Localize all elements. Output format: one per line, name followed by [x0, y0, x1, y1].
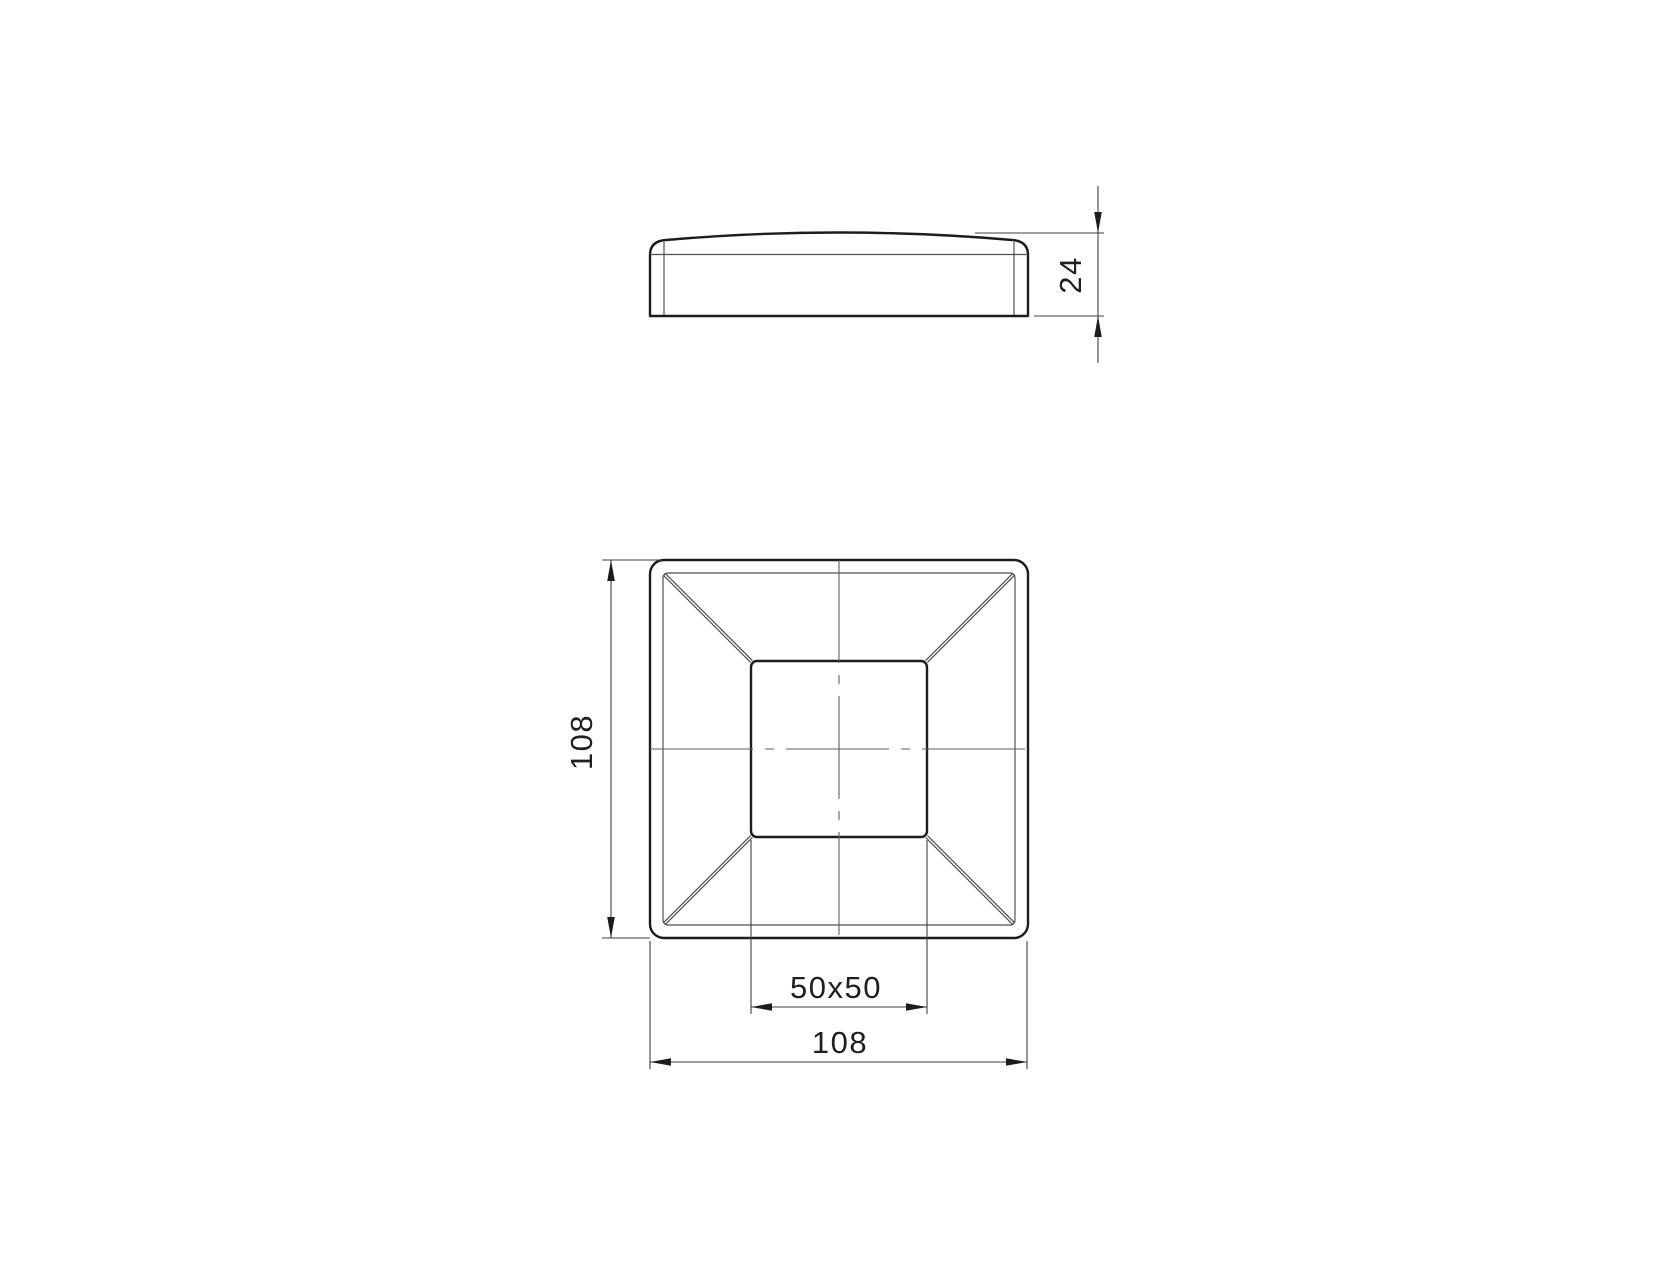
- side-view-outline: [650, 233, 1028, 317]
- dimension-label-inner-square: 50x50: [790, 970, 882, 1005]
- fillet-bottom-left-a: [663, 836, 751, 924]
- arrowhead-left: [650, 1058, 671, 1066]
- dimension-label-plan-height: 108: [564, 714, 599, 770]
- side-elevation-view: [650, 233, 1028, 317]
- arrowhead-right: [1006, 1058, 1027, 1066]
- arrowhead-down: [607, 917, 615, 938]
- fillet-bottom-left-b: [665, 837, 753, 925]
- arrowhead-right: [906, 1003, 927, 1011]
- fillet-top-right-a: [927, 575, 1015, 663]
- fillet-top-left-b: [663, 575, 751, 663]
- fillet-bottom-right-a: [926, 837, 1014, 925]
- arrowhead-left: [751, 1003, 772, 1011]
- fillet-top-left-a: [665, 573, 753, 661]
- fillet-top-right-b: [926, 573, 1014, 661]
- dimension-plan-width: 108: [650, 941, 1027, 1069]
- post-cap-drawing: 24: [0, 0, 1680, 1261]
- top-plan-view: [650, 560, 1028, 938]
- dimension-label-plan-width: 108: [812, 1025, 868, 1060]
- arrowhead-up: [1094, 316, 1102, 337]
- technical-drawing-sheet: 24: [0, 0, 1680, 1261]
- arrowhead-up: [607, 560, 615, 581]
- arrowhead-down: [1094, 212, 1102, 233]
- fillet-bottom-right-b: [927, 836, 1015, 924]
- dimension-cap-height: 24: [975, 186, 1104, 363]
- dimension-plan-height: 108: [564, 560, 662, 938]
- dimension-label-cap-height: 24: [1053, 256, 1088, 293]
